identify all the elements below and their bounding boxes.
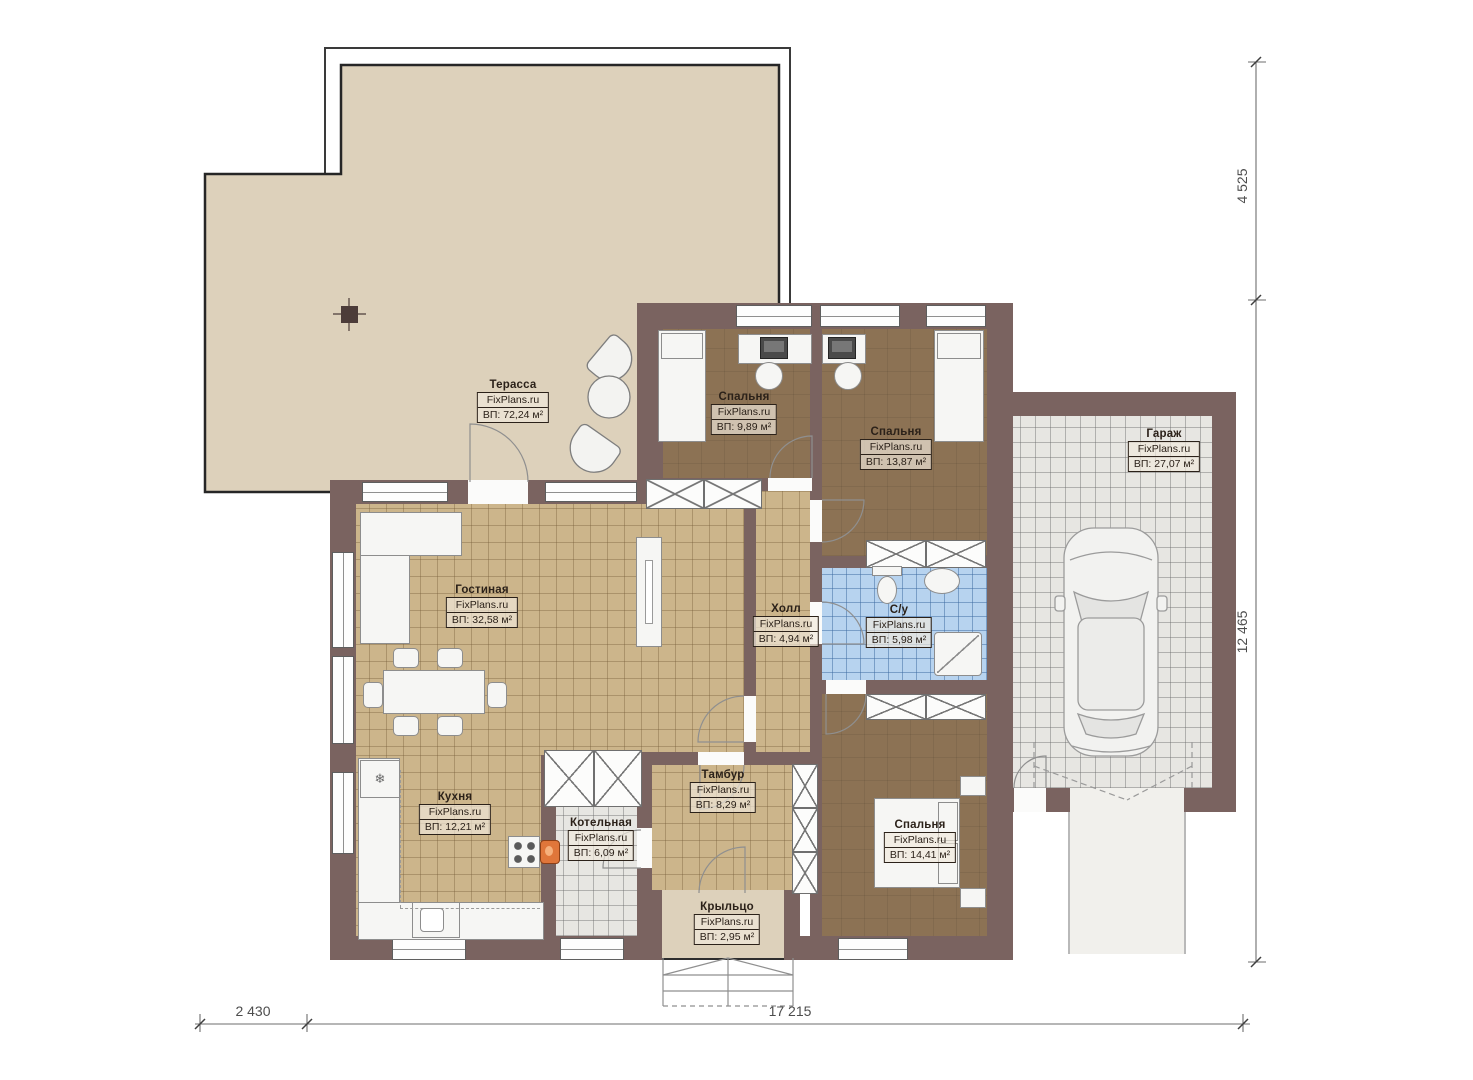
dimension-label-bottom-main: 17 215 [769, 1003, 812, 1019]
room-area: ВП: 12,21 м² [420, 820, 490, 834]
room-site-link: FixPlans.ru [1129, 442, 1199, 457]
room-info-box: FixPlans.ru ВП: 14,41 м² [884, 832, 956, 863]
door-opening-boiler [637, 828, 652, 868]
window-living-a [332, 552, 354, 648]
door-opening-garage-side [1014, 788, 1046, 812]
dining-chair [393, 716, 419, 736]
door-arc-terrace [470, 424, 528, 482]
door-opening-bedroom3 [826, 680, 866, 694]
room-name: Гостиная [446, 584, 518, 596]
room-site-link: FixPlans.ru [478, 393, 548, 408]
wardrobe-bedroom3-b [926, 694, 986, 720]
room-area: ВП: 2,95 м² [695, 930, 759, 944]
room-site-link: FixPlans.ru [712, 405, 776, 420]
room-name: Тамбур [690, 769, 756, 781]
terrace-table [588, 376, 630, 418]
door-opening-hall-tambur [698, 752, 744, 765]
terrace-column [341, 306, 358, 323]
closet-tambur-b [792, 808, 818, 852]
room-site-link: FixPlans.ru [447, 598, 517, 613]
window-bedroom3 [838, 938, 908, 960]
sofa-corner-horizontal [360, 512, 462, 556]
shower-cabin [934, 632, 982, 676]
window-terrace-b [545, 482, 637, 502]
room-area: ВП: 5,98 м² [867, 633, 931, 647]
room-name: Терасса [477, 379, 549, 391]
porch-steps-lines [663, 958, 793, 1006]
room-site-link: FixPlans.ru [867, 618, 931, 633]
nightstand-bottom [960, 888, 986, 908]
tv-screen [645, 560, 653, 624]
terrace-furniture [561, 333, 641, 482]
floor-plan-canvas: ❄ [0, 0, 1473, 1080]
terrace-chair-icon [561, 422, 623, 481]
wardrobe-bedroom3-a [866, 694, 926, 720]
computer-icon-1 [760, 337, 788, 359]
garage-driveway [1068, 812, 1186, 954]
room-site-link: FixPlans.ru [885, 833, 955, 848]
dining-chair [487, 682, 507, 708]
window-bedroom2-b [926, 305, 986, 327]
room-label-hall: Холл FixPlans.ru ВП: 4,94 м² [753, 603, 819, 647]
room-name: Крыльцо [694, 901, 760, 913]
window-bedroom1 [736, 305, 812, 327]
room-name: Спальня [860, 426, 932, 438]
room-info-box: FixPlans.ru ВП: 32,58 м² [446, 597, 518, 628]
dining-chair [437, 648, 463, 668]
room-label-bedroom2: Спальня FixPlans.ru ВП: 13,87 м² [860, 426, 932, 470]
closet-boiler-b [594, 750, 642, 807]
wardrobe-bedroom2-a [866, 540, 926, 568]
closet-tambur-c [792, 852, 818, 894]
boiler-unit-icon [540, 840, 560, 864]
window-kitchen-south [392, 938, 466, 960]
room-name: Спальня [884, 819, 956, 831]
room-info-box: FixPlans.ru ВП: 27,07 м² [1128, 441, 1200, 472]
kitchen-sink-basin [420, 908, 444, 932]
window-living-b [332, 656, 354, 744]
wall-garage-north [987, 392, 1236, 416]
nightstand-top [960, 776, 986, 796]
room-area: ВП: 13,87 м² [861, 455, 931, 469]
room-info-box: FixPlans.ru ВП: 13,87 м² [860, 439, 932, 470]
window-bedroom2-a [820, 305, 900, 327]
room-area: ВП: 4,94 м² [754, 632, 818, 646]
wardrobe-corridor-a [646, 479, 704, 509]
porch-steps [663, 958, 793, 1006]
room-site-link: FixPlans.ru [695, 915, 759, 930]
window-boiler [560, 938, 624, 960]
room-site-link: FixPlans.ru [754, 617, 818, 632]
room-info-box: FixPlans.ru ВП: 12,21 м² [419, 804, 491, 835]
room-area: ВП: 8,29 м² [691, 798, 755, 812]
room-site-link: FixPlans.ru [691, 783, 755, 798]
wardrobe-bedroom2-b [926, 540, 986, 568]
toilet-bowl [877, 576, 897, 604]
door-opening-bedroom1 [768, 478, 812, 491]
wall-garage-east [1212, 392, 1236, 812]
room-label-garage: Гараж FixPlans.ru ВП: 27,07 м² [1128, 428, 1200, 472]
room-name: Гараж [1128, 428, 1200, 440]
computer-icon-2 [828, 337, 856, 359]
cooktop [508, 836, 540, 868]
bed-pillow-2 [937, 333, 981, 359]
dining-chair [363, 682, 383, 708]
room-label-bedroom3: Спальня FixPlans.ru ВП: 14,41 м² [884, 819, 956, 863]
room-area: ВП: 27,07 м² [1129, 457, 1199, 471]
room-name: Спальня [711, 391, 777, 403]
room-site-link: FixPlans.ru [420, 805, 490, 820]
dining-table [383, 670, 485, 714]
room-area: ВП: 32,58 м² [447, 613, 517, 627]
room-name: С/у [866, 604, 932, 616]
upper-cabinets-dashed-line [400, 770, 401, 908]
room-name: Котельная [568, 817, 634, 829]
window-terrace-a [362, 482, 448, 502]
closet-tambur-a [792, 764, 818, 808]
fridge-snowflake-icon: ❄ [360, 760, 400, 798]
room-label-terrace: Терасса FixPlans.ru ВП: 72,24 м² [477, 379, 549, 423]
room-name: Холл [753, 603, 819, 615]
dimension-label-top-right: 4 525 [1234, 168, 1250, 203]
porch-steps-direction [663, 958, 793, 1006]
dining-chair [437, 716, 463, 736]
toilet-tank [872, 566, 902, 576]
garage-vehicle-door [1070, 788, 1184, 812]
room-site-link: FixPlans.ru [861, 440, 931, 455]
room-area: ВП: 72,24 м² [478, 408, 548, 422]
roof-outline [325, 48, 790, 306]
window-kitchen-west [332, 772, 354, 854]
room-label-bathroom: С/у FixPlans.ru ВП: 5,98 м² [866, 604, 932, 648]
bathroom-sink [924, 568, 960, 594]
room-label-living: Гостиная FixPlans.ru ВП: 32,58 м² [446, 584, 518, 628]
room-info-box: FixPlans.ru ВП: 2,95 м² [694, 914, 760, 945]
room-area: ВП: 14,41 м² [885, 848, 955, 862]
room-info-box: FixPlans.ru ВП: 4,94 м² [753, 616, 819, 647]
room-site-link: FixPlans.ru [569, 831, 633, 846]
room-area: ВП: 6,09 м² [569, 846, 633, 860]
wall-porch-right [784, 890, 800, 960]
door-opening-bedroom2 [810, 500, 822, 542]
dimension-label-right: 12 465 [1234, 610, 1250, 653]
wardrobe-corridor-b [704, 479, 762, 509]
room-info-box: FixPlans.ru ВП: 8,29 м² [690, 782, 756, 813]
room-info-box: FixPlans.ru ВП: 9,89 м² [711, 404, 777, 435]
door-opening-living-hall [744, 696, 756, 742]
bed-pillow-1 [661, 333, 703, 359]
dimension-label-bottom-left: 2 430 [235, 1003, 270, 1019]
stool-1 [755, 362, 783, 390]
room-label-kitchen: Кухня FixPlans.ru ВП: 12,21 м² [419, 791, 491, 835]
room-info-box: FixPlans.ru ВП: 6,09 м² [568, 830, 634, 861]
room-label-boiler: Котельная FixPlans.ru ВП: 6,09 м² [568, 817, 634, 861]
stool-2 [834, 362, 862, 390]
room-name: Кухня [419, 791, 491, 803]
room-info-box: FixPlans.ru ВП: 72,24 м² [477, 392, 549, 423]
room-info-box: FixPlans.ru ВП: 5,98 м² [866, 617, 932, 648]
room-label-tambur: Тамбур FixPlans.ru ВП: 8,29 м² [690, 769, 756, 813]
room-label-porch: Крыльцо FixPlans.ru ВП: 2,95 м² [694, 901, 760, 945]
room-label-bedroom1: Спальня FixPlans.ru ВП: 9,89 м² [711, 391, 777, 435]
door-opening-terrace [468, 480, 528, 504]
room-area: ВП: 9,89 м² [712, 420, 776, 434]
closet-boiler-a [544, 750, 594, 807]
dining-chair [393, 648, 419, 668]
terrace-chair-icon [585, 333, 641, 390]
